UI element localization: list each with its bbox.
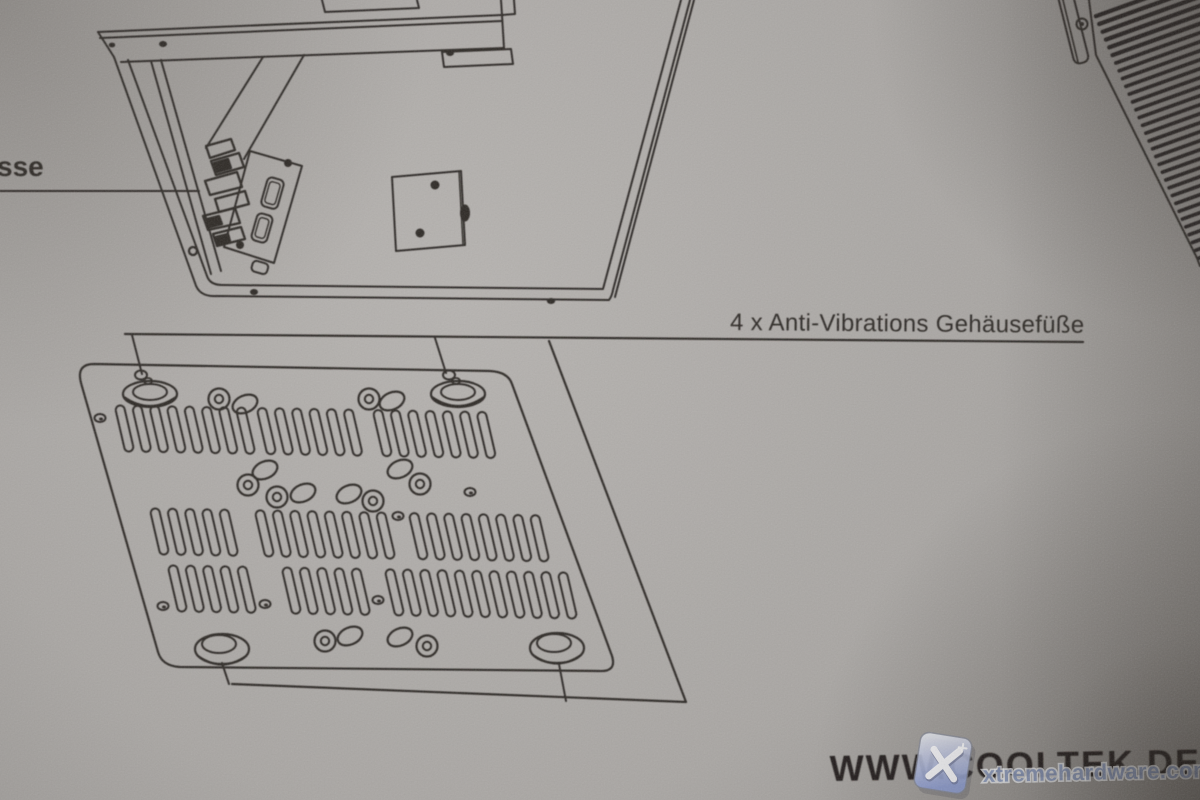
instruction-sheet-scene: sse 4 x Anti-Vibrations Gehäusefüße [0, 0, 1200, 800]
photographed-instruction-sheet: sse 4 x Anti-Vibrations Gehäusefüße [0, 0, 1200, 800]
photo-grain [0, 0, 1200, 800]
